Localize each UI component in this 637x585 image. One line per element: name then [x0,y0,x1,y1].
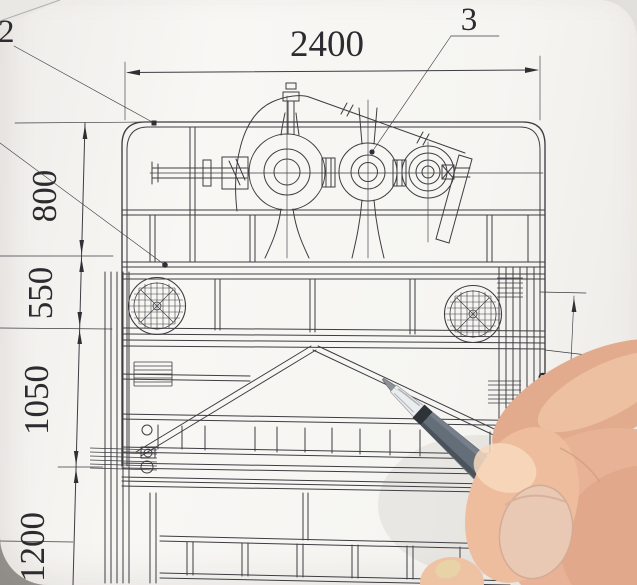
callout-3-label: 3 [461,2,478,38]
deck-rails [122,210,545,279]
coil-spring-left [129,278,186,335]
gearbox [150,83,543,262]
gear-middle [339,100,397,258]
machine-frame [122,122,545,466]
dim-800-label: 800 [25,170,64,223]
callout-2: 2 [0,14,157,126]
gear-right [402,142,454,242]
callout-3: 3 [369,2,499,155]
gear-large [249,96,325,258]
callout-2-label: 2 [0,14,15,50]
dim-1200-label: 1200 [13,512,52,582]
coil-spring-right [445,286,502,343]
dim-1050-label: 1050 [17,365,56,435]
dim-top-label: 2400 [290,24,364,65]
photo-scene: 2400 800 550 1050 1200 1403 [0,0,637,585]
dim-550-label: 550 [21,267,60,320]
